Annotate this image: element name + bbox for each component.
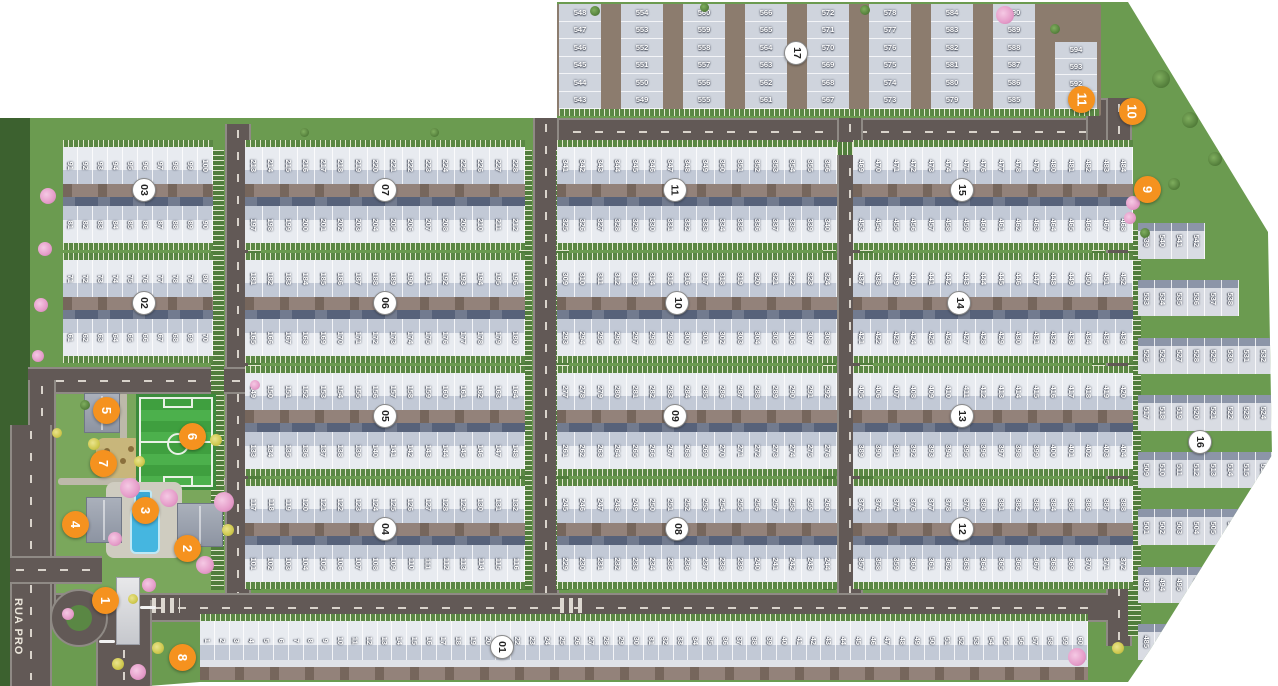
lot-151[interactable]: 151: [280, 373, 298, 410]
lot-29[interactable]: 29: [614, 621, 629, 660]
lot-326[interactable]: 326: [575, 206, 593, 243]
lot-341[interactable]: 341: [557, 147, 575, 184]
lot-481[interactable]: 481: [1063, 147, 1081, 184]
lot-320[interactable]: 320: [750, 260, 768, 297]
lot-109[interactable]: 109: [385, 545, 403, 582]
lot-134[interactable]: 134: [263, 432, 281, 469]
lot-45[interactable]: 45: [851, 621, 866, 660]
lot-211[interactable]: 211: [490, 206, 508, 243]
lot-496[interactable]: 496: [1188, 567, 1205, 603]
lot-2[interactable]: 2: [215, 621, 230, 660]
lot-240[interactable]: 240: [750, 545, 768, 582]
lot-433[interactable]: 433: [1063, 319, 1081, 356]
lot-182[interactable]: 182: [263, 260, 281, 297]
lot-129[interactable]: 129: [455, 486, 473, 523]
lot-409[interactable]: 409: [923, 373, 941, 410]
lot-94[interactable]: 94: [108, 147, 123, 184]
lot-192[interactable]: 192: [438, 260, 456, 297]
lot-223[interactable]: 223: [420, 147, 438, 184]
lot-530[interactable]: 530: [1222, 338, 1239, 374]
lot-428[interactable]: 428: [976, 319, 994, 356]
lot-181[interactable]: 181: [245, 260, 263, 297]
lot-526[interactable]: 526: [1155, 338, 1172, 374]
lot-333[interactable]: 333: [697, 206, 715, 243]
lot-13[interactable]: 13: [378, 621, 393, 660]
lot-351[interactable]: 351: [732, 147, 750, 184]
lot-331[interactable]: 331: [662, 206, 680, 243]
lot-462[interactable]: 462: [1011, 206, 1029, 243]
lot-357[interactable]: 357: [853, 545, 871, 582]
lot-291[interactable]: 291: [802, 373, 820, 410]
lot-176[interactable]: 176: [438, 319, 456, 356]
lot-161[interactable]: 161: [455, 373, 473, 410]
lot-18[interactable]: 18: [452, 621, 467, 660]
lot-258[interactable]: 258: [785, 486, 803, 523]
lot-393[interactable]: 393: [923, 432, 941, 469]
lot-224[interactable]: 224: [438, 147, 456, 184]
lot-364[interactable]: 364: [976, 545, 994, 582]
lot-583[interactable]: 583: [931, 22, 973, 40]
lot-105[interactable]: 105: [315, 545, 333, 582]
lot-594[interactable]: 594: [1055, 42, 1097, 59]
lot-49[interactable]: 49: [910, 621, 925, 660]
lot-265[interactable]: 265: [627, 432, 645, 469]
lot-504[interactable]: 504: [1188, 509, 1205, 545]
lot-435[interactable]: 435: [1098, 319, 1116, 356]
lot-578[interactable]: 578: [869, 4, 911, 22]
lot-342[interactable]: 342: [575, 147, 593, 184]
lot-164[interactable]: 164: [508, 373, 526, 410]
lot-11[interactable]: 11: [348, 621, 363, 660]
lot-486[interactable]: 486: [1155, 624, 1172, 660]
lot-296[interactable]: 296: [610, 319, 628, 356]
lot-402[interactable]: 402: [1081, 432, 1099, 469]
lot-184[interactable]: 184: [298, 260, 316, 297]
lot-395[interactable]: 395: [958, 432, 976, 469]
lot-7[interactable]: 7: [289, 621, 304, 660]
lot-498[interactable]: 498: [1222, 567, 1239, 603]
lot-178[interactable]: 178: [473, 319, 491, 356]
lot-362[interactable]: 362: [941, 545, 959, 582]
lot-78[interactable]: 78: [168, 260, 183, 297]
lot-503[interactable]: 503: [1172, 509, 1189, 545]
lot-107[interactable]: 107: [350, 545, 368, 582]
lot-553[interactable]: 553: [621, 22, 663, 40]
lot-237[interactable]: 237: [697, 545, 715, 582]
lot-570[interactable]: 570: [807, 39, 849, 57]
lot-230[interactable]: 230: [575, 545, 593, 582]
lot-208[interactable]: 208: [438, 206, 456, 243]
lot-110[interactable]: 110: [403, 545, 421, 582]
lot-506[interactable]: 506: [1222, 509, 1239, 545]
lot-589[interactable]: 589: [993, 22, 1035, 40]
lot-568[interactable]: 568: [807, 74, 849, 92]
lot-301[interactable]: 301: [697, 319, 715, 356]
lot-116[interactable]: 116: [508, 545, 526, 582]
lot-33[interactable]: 33: [674, 621, 689, 660]
lot-307[interactable]: 307: [802, 319, 820, 356]
lot-210[interactable]: 210: [473, 206, 491, 243]
lot-216[interactable]: 216: [298, 147, 316, 184]
lot-512[interactable]: 512: [1188, 452, 1205, 488]
lot-471[interactable]: 471: [888, 147, 906, 184]
lot-294[interactable]: 294: [575, 319, 593, 356]
lot-534[interactable]: 534: [1155, 280, 1172, 316]
lot-525[interactable]: 525: [1138, 338, 1155, 374]
lot-421[interactable]: 421: [853, 319, 871, 356]
lot-489[interactable]: 489: [1205, 624, 1222, 660]
lot-142[interactable]: 142: [403, 432, 421, 469]
lot-155[interactable]: 155: [350, 373, 368, 410]
lot-169[interactable]: 169: [315, 319, 333, 356]
lot-306[interactable]: 306: [785, 319, 803, 356]
lot-238[interactable]: 238: [715, 545, 733, 582]
lot-91[interactable]: 91: [63, 147, 78, 184]
lot-459[interactable]: 459: [958, 206, 976, 243]
lot-55[interactable]: 55: [999, 621, 1014, 660]
lot-324[interactable]: 324: [820, 260, 838, 297]
lot-434[interactable]: 434: [1081, 319, 1099, 356]
lot-579[interactable]: 579: [931, 92, 973, 110]
lot-330[interactable]: 330: [645, 206, 663, 243]
lot-241[interactable]: 241: [767, 545, 785, 582]
lot-587[interactable]: 587: [993, 57, 1035, 75]
lot-571[interactable]: 571: [807, 22, 849, 40]
lot-147[interactable]: 147: [490, 432, 508, 469]
lot-64[interactable]: 64: [108, 319, 123, 356]
lot-10[interactable]: 10: [333, 621, 348, 660]
lot-540[interactable]: 540: [1155, 223, 1172, 259]
lot-401[interactable]: 401: [1063, 432, 1081, 469]
amenity-badge-6[interactable]: 6: [179, 423, 206, 450]
lot-366[interactable]: 366: [1011, 545, 1029, 582]
lot-457[interactable]: 457: [923, 206, 941, 243]
lot-300[interactable]: 300: [680, 319, 698, 356]
lot-431[interactable]: 431: [1028, 319, 1046, 356]
lot-374[interactable]: 374: [871, 486, 889, 523]
lot-344[interactable]: 344: [610, 147, 628, 184]
lot-441[interactable]: 441: [923, 260, 941, 297]
lot-179[interactable]: 179: [490, 319, 508, 356]
lot-255[interactable]: 255: [732, 486, 750, 523]
lot-170[interactable]: 170: [333, 319, 351, 356]
lot-358[interactable]: 358: [871, 545, 889, 582]
lot-536[interactable]: 536: [1188, 280, 1205, 316]
lot-153[interactable]: 153: [315, 373, 333, 410]
lot-502[interactable]: 502: [1155, 509, 1172, 545]
lot-8[interactable]: 8: [304, 621, 319, 660]
lot-359[interactable]: 359: [888, 545, 906, 582]
lot-273[interactable]: 273: [767, 432, 785, 469]
lot-285[interactable]: 285: [697, 373, 715, 410]
lot-50[interactable]: 50: [925, 621, 940, 660]
lot-473[interactable]: 473: [923, 147, 941, 184]
lot-235[interactable]: 235: [662, 545, 680, 582]
lot-336[interactable]: 336: [750, 206, 768, 243]
lot-112[interactable]: 112: [438, 545, 456, 582]
lot-467[interactable]: 467: [1098, 206, 1116, 243]
lot-144[interactable]: 144: [438, 432, 456, 469]
lot-529[interactable]: 529: [1205, 338, 1222, 374]
lot-429[interactable]: 429: [993, 319, 1011, 356]
lot-16[interactable]: 16: [422, 621, 437, 660]
lot-261[interactable]: 261: [557, 432, 575, 469]
lot-71[interactable]: 71: [63, 260, 78, 297]
lot-287[interactable]: 287: [732, 373, 750, 410]
lot-425[interactable]: 425: [923, 319, 941, 356]
lot-75[interactable]: 75: [123, 260, 138, 297]
lot-554[interactable]: 554: [621, 4, 663, 22]
lot-123[interactable]: 123: [350, 486, 368, 523]
lot-460[interactable]: 460: [976, 206, 994, 243]
lot-195[interactable]: 195: [490, 260, 508, 297]
lot-485[interactable]: 485: [1138, 624, 1155, 660]
lot-524[interactable]: 524: [1256, 395, 1273, 431]
lot-267[interactable]: 267: [662, 432, 680, 469]
lot-417[interactable]: 417: [1063, 373, 1081, 410]
lot-449[interactable]: 449: [1063, 260, 1081, 297]
lot-231[interactable]: 231: [592, 545, 610, 582]
lot-191[interactable]: 191: [420, 260, 438, 297]
lot-219[interactable]: 219: [350, 147, 368, 184]
lot-325[interactable]: 325: [557, 206, 575, 243]
lot-202[interactable]: 202: [333, 206, 351, 243]
lot-472[interactable]: 472: [906, 147, 924, 184]
lot-528[interactable]: 528: [1188, 338, 1205, 374]
lot-488[interactable]: 488: [1188, 624, 1205, 660]
lot-487[interactable]: 487: [1172, 624, 1189, 660]
lot-41[interactable]: 41: [792, 621, 807, 660]
lot-533[interactable]: 533: [1138, 280, 1155, 316]
lot-521[interactable]: 521: [1205, 395, 1222, 431]
lot-380[interactable]: 380: [976, 486, 994, 523]
lot-551[interactable]: 551: [621, 57, 663, 75]
lot-205[interactable]: 205: [385, 206, 403, 243]
lot-246[interactable]: 246: [575, 486, 593, 523]
lot-32[interactable]: 32: [659, 621, 674, 660]
lot-396[interactable]: 396: [976, 432, 994, 469]
lot-14[interactable]: 14: [392, 621, 407, 660]
lot-335[interactable]: 335: [732, 206, 750, 243]
lot-510[interactable]: 510: [1155, 452, 1172, 488]
lot-552[interactable]: 552: [621, 39, 663, 57]
lot-54[interactable]: 54: [984, 621, 999, 660]
lot-145[interactable]: 145: [455, 432, 473, 469]
lot-436[interactable]: 436: [1116, 319, 1134, 356]
lot-499[interactable]: 499: [1239, 567, 1256, 603]
lot-5[interactable]: 5: [259, 621, 274, 660]
lot-519[interactable]: 519: [1172, 395, 1189, 431]
lot-447[interactable]: 447: [1028, 260, 1046, 297]
lot-234[interactable]: 234: [645, 545, 663, 582]
lot-327[interactable]: 327: [592, 206, 610, 243]
lot-492[interactable]: 492: [1256, 624, 1273, 660]
lot-199[interactable]: 199: [280, 206, 298, 243]
lot-479[interactable]: 479: [1028, 147, 1046, 184]
lot-201[interactable]: 201: [315, 206, 333, 243]
lot-497[interactable]: 497: [1205, 567, 1222, 603]
amenity-badge-4[interactable]: 4: [62, 511, 89, 538]
lot-582[interactable]: 582: [931, 39, 973, 57]
lot-81[interactable]: 81: [63, 206, 78, 243]
lot-114[interactable]: 114: [473, 545, 491, 582]
lot-438[interactable]: 438: [871, 260, 889, 297]
lot-61[interactable]: 61: [63, 319, 78, 356]
lot-162[interactable]: 162: [473, 373, 491, 410]
lot-214[interactable]: 214: [263, 147, 281, 184]
lot-555[interactable]: 555: [683, 92, 725, 110]
lot-286[interactable]: 286: [715, 373, 733, 410]
lot-483[interactable]: 483: [1098, 147, 1116, 184]
lot-458[interactable]: 458: [941, 206, 959, 243]
lot-66[interactable]: 66: [138, 319, 153, 356]
lot-177[interactable]: 177: [455, 319, 473, 356]
lot-120[interactable]: 120: [298, 486, 316, 523]
lot-158[interactable]: 158: [403, 373, 421, 410]
lot-312[interactable]: 312: [610, 260, 628, 297]
lot-207[interactable]: 207: [420, 206, 438, 243]
lot-340[interactable]: 340: [820, 206, 838, 243]
lot-242[interactable]: 242: [785, 545, 803, 582]
lot-232[interactable]: 232: [610, 545, 628, 582]
lot-576[interactable]: 576: [869, 39, 911, 57]
lot-233[interactable]: 233: [627, 545, 645, 582]
lot-538[interactable]: 538: [1222, 280, 1239, 316]
lot-187[interactable]: 187: [350, 260, 368, 297]
lot-139[interactable]: 139: [350, 432, 368, 469]
lot-279[interactable]: 279: [592, 373, 610, 410]
lot-82[interactable]: 82: [78, 206, 93, 243]
amenity-badge-5[interactable]: 5: [93, 397, 120, 424]
lot-198[interactable]: 198: [263, 206, 281, 243]
lot-310[interactable]: 310: [575, 260, 593, 297]
lot-193[interactable]: 193: [455, 260, 473, 297]
lot-42[interactable]: 42: [807, 621, 822, 660]
lot-544[interactable]: 544: [559, 74, 601, 92]
lot-418[interactable]: 418: [1081, 373, 1099, 410]
lot-559[interactable]: 559: [683, 22, 725, 40]
lot-445[interactable]: 445: [993, 260, 1011, 297]
lot-419[interactable]: 419: [1098, 373, 1116, 410]
lot-92[interactable]: 92: [78, 147, 93, 184]
lot-83[interactable]: 83: [93, 206, 108, 243]
lot-403[interactable]: 403: [1098, 432, 1116, 469]
lot-365[interactable]: 365: [993, 545, 1011, 582]
lot-293[interactable]: 293: [557, 319, 575, 356]
lot-463[interactable]: 463: [1028, 206, 1046, 243]
lot-476[interactable]: 476: [976, 147, 994, 184]
lot-407[interactable]: 407: [888, 373, 906, 410]
lot-280[interactable]: 280: [610, 373, 628, 410]
lot-328[interactable]: 328: [610, 206, 628, 243]
lot-22[interactable]: 22: [511, 621, 526, 660]
lot-413[interactable]: 413: [993, 373, 1011, 410]
lot-511[interactable]: 511: [1172, 452, 1189, 488]
lot-343[interactable]: 343: [592, 147, 610, 184]
lot-79[interactable]: 79: [183, 260, 198, 297]
lot-57[interactable]: 57: [1029, 621, 1044, 660]
lot-509[interactable]: 509: [1138, 452, 1155, 488]
lot-101[interactable]: 101: [245, 545, 263, 582]
lot-183[interactable]: 183: [280, 260, 298, 297]
lot-466[interactable]: 466: [1081, 206, 1099, 243]
lot-292[interactable]: 292: [820, 373, 838, 410]
lot-171[interactable]: 171: [350, 319, 368, 356]
lot-567[interactable]: 567: [807, 92, 849, 110]
lot-371[interactable]: 371: [1098, 545, 1116, 582]
lot-523[interactable]: 523: [1239, 395, 1256, 431]
lot-381[interactable]: 381: [993, 486, 1011, 523]
amenity-badge-8[interactable]: 8: [169, 644, 196, 671]
lot-375[interactable]: 375: [888, 486, 906, 523]
lot-228[interactable]: 228: [508, 147, 526, 184]
lot-573[interactable]: 573: [869, 92, 911, 110]
lot-43[interactable]: 43: [821, 621, 836, 660]
lot-517[interactable]: 517: [1138, 395, 1155, 431]
lot-196[interactable]: 196: [508, 260, 526, 297]
lot-174[interactable]: 174: [403, 319, 421, 356]
lot-537[interactable]: 537: [1205, 280, 1222, 316]
lot-282[interactable]: 282: [645, 373, 663, 410]
lot-141[interactable]: 141: [385, 432, 403, 469]
lot-63[interactable]: 63: [93, 319, 108, 356]
lot-440[interactable]: 440: [906, 260, 924, 297]
lot-580[interactable]: 580: [931, 74, 973, 92]
lot-278[interactable]: 278: [575, 373, 593, 410]
lot-369[interactable]: 369: [1063, 545, 1081, 582]
lot-172[interactable]: 172: [368, 319, 386, 356]
lot-163[interactable]: 163: [490, 373, 508, 410]
lot-128[interactable]: 128: [438, 486, 456, 523]
lot-302[interactable]: 302: [715, 319, 733, 356]
lot-46[interactable]: 46: [866, 621, 881, 660]
lot-349[interactable]: 349: [697, 147, 715, 184]
lot-289[interactable]: 289: [767, 373, 785, 410]
lot-574[interactable]: 574: [869, 74, 911, 92]
lot-564[interactable]: 564: [745, 39, 787, 57]
lot-427[interactable]: 427: [958, 319, 976, 356]
lot-272[interactable]: 272: [750, 432, 768, 469]
lot-226[interactable]: 226: [473, 147, 491, 184]
lot-113[interactable]: 113: [455, 545, 473, 582]
lot-376[interactable]: 376: [906, 486, 924, 523]
lot-491[interactable]: 491: [1239, 624, 1256, 660]
lot-152[interactable]: 152: [298, 373, 316, 410]
lot-387[interactable]: 387: [1098, 486, 1116, 523]
lot-338[interactable]: 338: [785, 206, 803, 243]
lot-95[interactable]: 95: [123, 147, 138, 184]
lot-430[interactable]: 430: [1011, 319, 1029, 356]
lot-262[interactable]: 262: [575, 432, 593, 469]
lot-69[interactable]: 69: [183, 319, 198, 356]
lot-377[interactable]: 377: [923, 486, 941, 523]
lot-390[interactable]: 390: [871, 432, 889, 469]
lot-93[interactable]: 93: [93, 147, 108, 184]
lot-38[interactable]: 38: [747, 621, 762, 660]
lot-121[interactable]: 121: [315, 486, 333, 523]
lot-197[interactable]: 197: [245, 206, 263, 243]
lot-70[interactable]: 70: [198, 319, 213, 356]
lot-23[interactable]: 23: [526, 621, 541, 660]
lot-108[interactable]: 108: [368, 545, 386, 582]
lot-131[interactable]: 131: [490, 486, 508, 523]
lot-543[interactable]: 543: [559, 92, 601, 110]
lot-405[interactable]: 405: [853, 373, 871, 410]
lot-194[interactable]: 194: [473, 260, 491, 297]
lot-522[interactable]: 522: [1222, 395, 1239, 431]
lot-416[interactable]: 416: [1046, 373, 1064, 410]
lot-213[interactable]: 213: [245, 147, 263, 184]
